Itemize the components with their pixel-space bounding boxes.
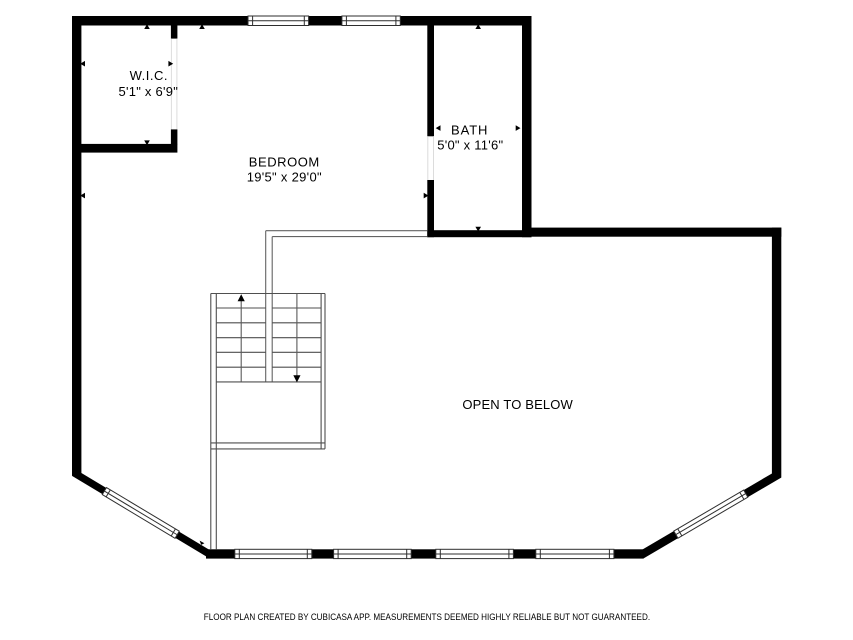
- svg-text:5'0" x 11'6": 5'0" x 11'6": [437, 138, 503, 153]
- svg-text:BATH: BATH: [451, 123, 488, 138]
- svg-text:OPEN TO BELOW: OPEN TO BELOW: [462, 397, 573, 412]
- svg-text:5'1" x 6'9": 5'1" x 6'9": [119, 84, 179, 99]
- svg-text:19'5" x 29'0": 19'5" x 29'0": [247, 170, 322, 185]
- svg-text:FLOOR PLAN CREATED BY CUBICASA: FLOOR PLAN CREATED BY CUBICASA APP. MEAS…: [204, 612, 650, 622]
- svg-text:W.I.C.: W.I.C.: [130, 68, 168, 83]
- svg-text:BEDROOM: BEDROOM: [249, 155, 320, 170]
